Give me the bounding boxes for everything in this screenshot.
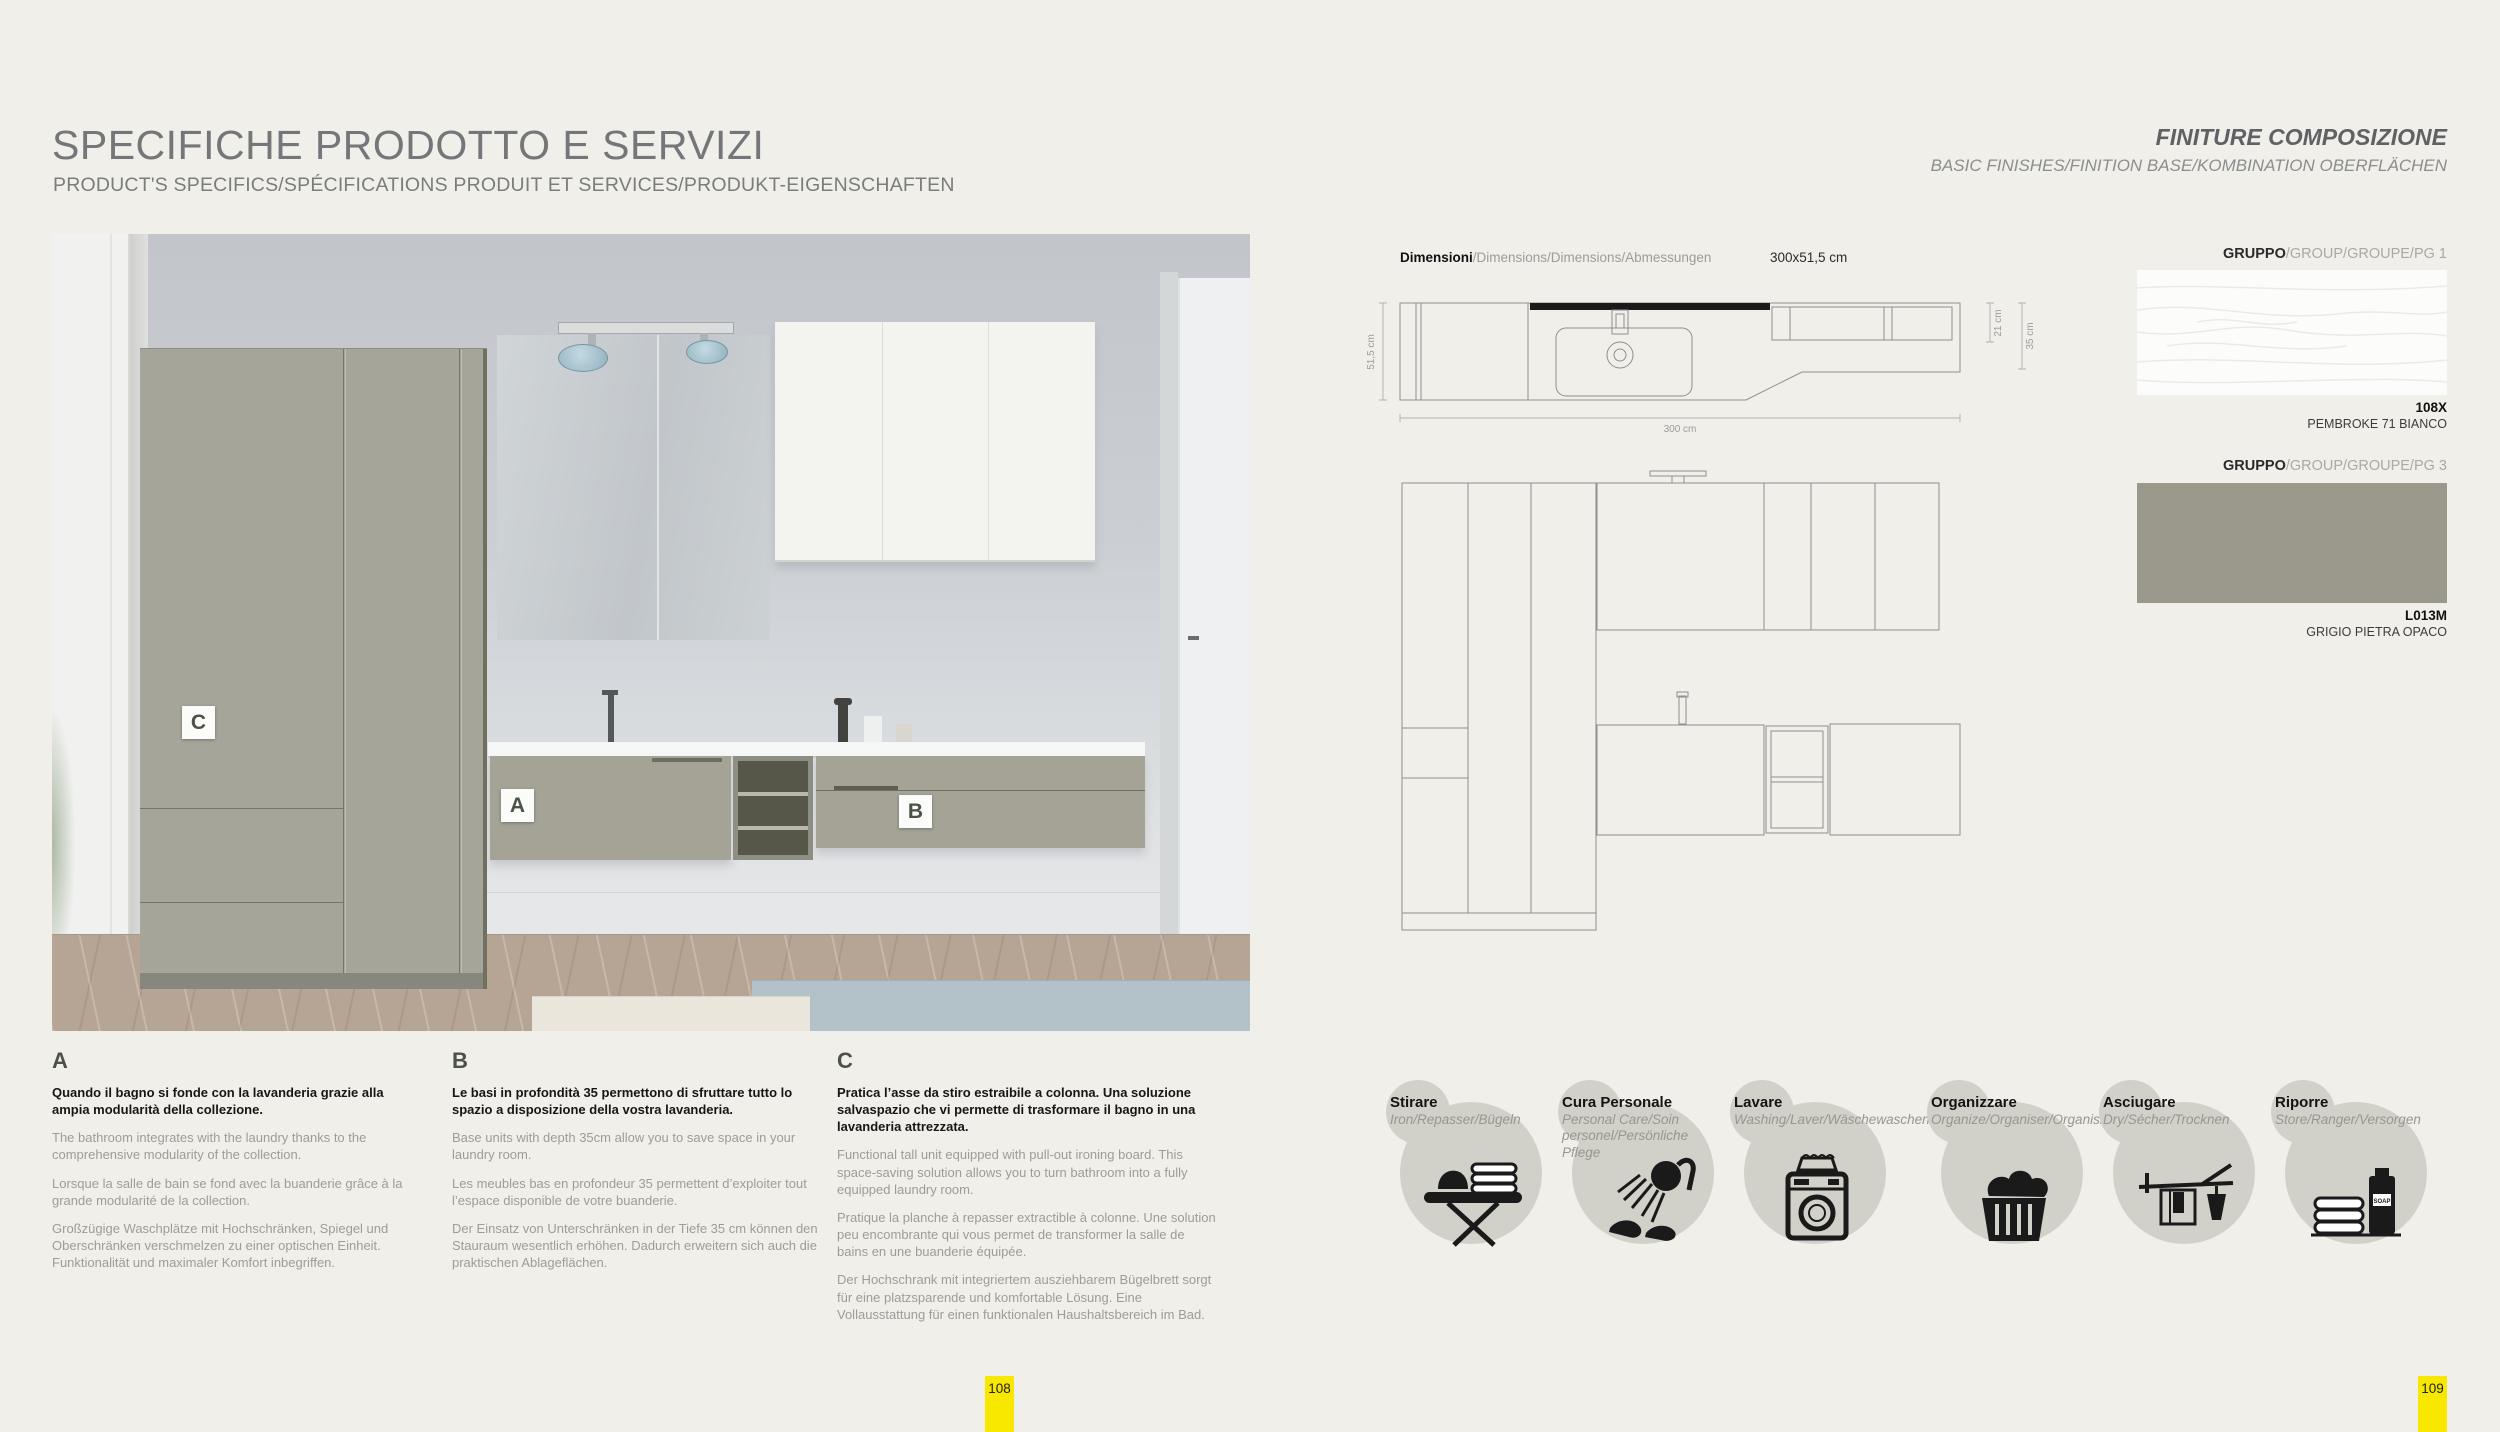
section-letter: A — [52, 1048, 420, 1074]
blue-rug — [752, 980, 1250, 1031]
dim-width-label: 300 cm — [1664, 424, 1697, 435]
right-page-subtitle: BASIC FINISHES/FINITION BASE/KOMBINATION… — [1900, 156, 2447, 176]
shelf — [738, 792, 808, 796]
section-lead: Quando il bagno si fonde con la lavander… — [52, 1084, 420, 1118]
section-paragraph: Les meubles bas en profondeur 35 permett… — [452, 1175, 820, 1209]
function-lavare: Lavare Washing/Laver/Wäschewaschen — [1728, 1076, 1904, 1252]
marker-letter: A — [510, 794, 525, 818]
marker-letter: C — [191, 711, 206, 735]
function-title: Stirare — [1390, 1094, 1526, 1112]
woodgrain-texture — [2137, 270, 2447, 395]
finish-name-2: GRIGIO PIETRA OPACO — [2140, 625, 2447, 639]
function-subtitle: Iron/Repasser/Bügeln — [1390, 1112, 1526, 1128]
counter-accessory-brush — [838, 702, 848, 742]
function-subtitle: Washing/Laver/Wäschewaschen — [1734, 1112, 1870, 1128]
finish-group-rest: /GROUP/GROUPE/PG 3 — [2286, 458, 2447, 474]
technical-drawings: 300 cm 51,5 cm 21 cm 35 cm — [1360, 290, 2060, 950]
drawer-handle — [652, 758, 722, 762]
washing-machine-icon — [1762, 1148, 1872, 1248]
mirror-reflection-line — [657, 335, 659, 640]
shelf-interior — [738, 761, 808, 855]
finish-name-1: PEMBROKE 71 BIANCO — [2140, 417, 2447, 431]
page-number: 108 — [988, 1381, 1011, 1396]
left-door-panel-line — [110, 234, 112, 1031]
drawer-unit-b — [816, 756, 1145, 848]
dim-21-label: 21 cm — [1993, 309, 2004, 336]
dimensions-label: Dimensioni/Dimensions/Dimensions/Abmessu… — [1400, 250, 1711, 265]
section-letter: C — [837, 1048, 1219, 1074]
page-title: SPECIFICHE PRODOTTO E SERVIZI — [52, 122, 764, 169]
towels-detergent-icon: SOAP — [2303, 1148, 2413, 1248]
drawer-handle — [834, 786, 898, 790]
dim-depth-label: 51,5 cm — [1366, 334, 1377, 370]
counter-accessory-cup — [864, 716, 882, 742]
section-paragraph: Der Hochschrank mit integriertem auszieh… — [837, 1271, 1219, 1322]
tall-cabinet-edge — [483, 349, 487, 989]
function-title: Riporre — [2275, 1094, 2411, 1112]
ceiling-lamp — [686, 340, 728, 364]
section-paragraph: Base units with depth 35cm allow you to … — [452, 1129, 820, 1163]
laundry-basket-icon — [1959, 1148, 2069, 1248]
faucet-spout — [602, 690, 618, 695]
shower-icon — [1590, 1148, 1700, 1248]
photo-marker-a: A — [501, 789, 534, 822]
section-paragraph: Lorsque la salle de bain se fond avec la… — [52, 1175, 420, 1209]
function-title: Asciugare — [2103, 1094, 2239, 1112]
photo-marker-b: B — [899, 795, 932, 828]
function-label: Organizzare Organize/Organiser/Organisie… — [1931, 1094, 2067, 1128]
function-cura-personale: Cura Personale Personal Care/Soin person… — [1556, 1076, 1732, 1252]
svg-text:SOAP: SOAP — [2373, 1199, 2390, 1205]
finish-swatch-pembroke — [2137, 270, 2447, 395]
tall-cabinet-plinth — [140, 973, 487, 989]
function-subtitle: Dry/Sécher/Trocknen — [2103, 1112, 2239, 1128]
function-label: Lavare Washing/Laver/Wäschewaschen — [1734, 1094, 1870, 1128]
section-paragraph: Functional tall unit equipped with pull-… — [837, 1146, 1219, 1197]
faucet — [608, 690, 614, 742]
open-shelf-unit — [733, 756, 813, 860]
finish-code-1: 108X — [2140, 400, 2447, 415]
dim-35-label: 35 cm — [2025, 322, 2036, 349]
function-subtitle: Store/Ranger/Versorgen — [2275, 1112, 2411, 1128]
function-title: Cura Personale — [1562, 1094, 1698, 1112]
page-number-tab-right: 109 — [2418, 1376, 2447, 1432]
function-title: Lavare — [1734, 1094, 1870, 1112]
counter-accessory-jar — [896, 724, 912, 742]
function-organizzare: Organizzare Organize/Organiser/Organisie… — [1925, 1076, 2101, 1252]
room-photo: C A B — [52, 234, 1250, 1031]
function-label: Stirare Iron/Repasser/Bügeln — [1390, 1094, 1526, 1128]
right-door — [1178, 278, 1250, 934]
section-c: C Pratica l’asse da stiro estraibile a c… — [837, 1048, 1219, 1323]
ceiling-lamp — [558, 344, 608, 372]
catalog-spread: SPECIFICHE PRODOTTO E SERVIZI PRODUCT'S … — [0, 0, 2500, 1432]
door-handle — [1188, 636, 1199, 640]
dimensions-label-bold: Dimensioni — [1400, 250, 1473, 265]
section-paragraph: The bathroom integrates with the laundry… — [52, 1129, 420, 1163]
mirror — [497, 335, 770, 640]
counter-accessory-brush-top — [834, 698, 852, 705]
finish-group-bold: GRUPPO — [2223, 458, 2286, 474]
section-a: A Quando il bagno si fonde con la lavand… — [52, 1048, 420, 1271]
finish-group-label-2: GRUPPO/GROUP/GROUPE/PG 3 — [2140, 458, 2447, 474]
finish-group-rest: /GROUP/GROUPE/PG 1 — [2286, 246, 2447, 262]
finish-swatch-grigio — [2137, 483, 2447, 603]
finish-group-label-1: GRUPPO/GROUP/GROUPE/PG 1 — [2140, 246, 2447, 262]
right-door-frame — [1160, 272, 1178, 934]
function-riporre: Riporre Store/Ranger/Versorgen SOAP — [2269, 1076, 2445, 1252]
page-number-tab-left: 108 — [985, 1376, 1014, 1432]
section-lead: Le basi in profondità 35 permettono di s… — [452, 1084, 820, 1118]
right-page-title: FINITURE COMPOSIZIONE — [1900, 124, 2447, 151]
white-rug — [532, 996, 810, 1031]
function-stirare: Stirare Iron/Repasser/Bügeln — [1384, 1076, 1560, 1252]
iron-icon — [1418, 1148, 1528, 1248]
section-paragraph: Großzügige Waschplätze mit Hochschränken… — [52, 1220, 420, 1271]
function-label: Asciugare Dry/Sécher/Trocknen — [2103, 1094, 2239, 1128]
marker-letter: B — [908, 800, 923, 824]
function-asciugare: Asciugare Dry/Sécher/Trocknen — [2097, 1076, 2273, 1252]
page-subtitle: PRODUCT'S SPECIFICS/SPÉCIFICATIONS PRODU… — [53, 174, 955, 197]
page-number: 109 — [2421, 1381, 2444, 1396]
dimensions-value: 300x51,5 cm — [1770, 250, 1847, 265]
section-b: B Le basi in profondità 35 permettono di… — [452, 1048, 820, 1271]
section-paragraph: Der Einsatz von Unterschränken in der Ti… — [452, 1220, 820, 1271]
tall-cabinet — [140, 348, 487, 989]
finish-code-2: L013M — [2140, 608, 2447, 623]
section-letter: B — [452, 1048, 820, 1074]
finish-group-bold: GRUPPO — [2223, 246, 2286, 262]
shelf — [738, 826, 808, 830]
drying-rack-icon — [2131, 1148, 2241, 1248]
section-paragraph: Pratique la planche à repasser extractib… — [837, 1209, 1219, 1260]
function-title: Organizzare — [1931, 1094, 2067, 1112]
section-lead: Pratica l’asse da stiro estraibile a col… — [837, 1084, 1219, 1135]
wall-cabinets — [775, 322, 1095, 562]
photo-marker-c: C — [182, 706, 215, 739]
dimensions-label-rest: /Dimensions/Dimensions/Abmessungen — [1473, 250, 1712, 265]
function-subtitle: Organize/Organiser/Organisieren — [1931, 1112, 2067, 1128]
function-label: Riporre Store/Ranger/Versorgen — [2275, 1094, 2411, 1128]
